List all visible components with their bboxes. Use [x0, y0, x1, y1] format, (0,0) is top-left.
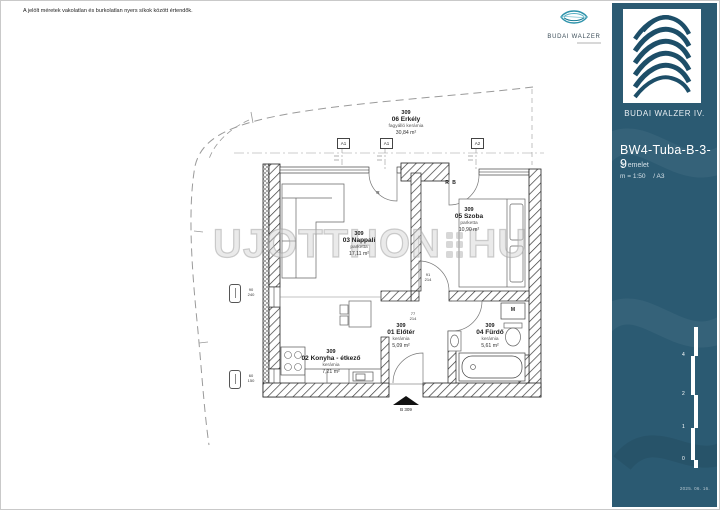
drawing-sheet: A jelölt méretek vakolatlan és burkolatl…: [0, 0, 720, 510]
axis-marker-a1-right: A1: [380, 138, 393, 149]
door-label-r: R: [376, 190, 379, 196]
room-label-szoba: 309 05 Szoba parketta 10,90 m²: [455, 207, 483, 233]
floor-label: 3. emelet: [620, 162, 649, 169]
budai-walzer-logo: BUDAI WALZER: [539, 6, 609, 44]
scalebar-label-0: 0: [682, 456, 685, 462]
washer-label-m: M: [511, 307, 515, 313]
disclaimer-text: A jelölt méretek vakolatlan és burkolatl…: [23, 8, 193, 14]
window-dim-upper: 90 240: [248, 287, 255, 297]
watermark-dots-icon: [446, 232, 463, 258]
room-label-erkely: 309 06 Erkély fagyálló kerámia 30,84 m²: [389, 110, 424, 136]
scale-value: m = 1:50: [620, 173, 645, 180]
watermark-left: UJOTTHON: [213, 222, 441, 267]
top-logo-label: BUDAI WALZER: [539, 34, 609, 40]
door-dim-eloter: 77 214: [410, 311, 417, 321]
sidebar-logo-box: [623, 9, 701, 103]
leaf-swirl-icon: [558, 6, 590, 28]
sheet-size: / A3: [653, 173, 664, 180]
door-dim-szoba: 91 214: [425, 272, 432, 282]
date-stamp: 2025. 06. 16.: [680, 486, 710, 491]
window-marker-box-upper: [229, 284, 241, 303]
window-dim-lower: 60 150: [248, 373, 255, 383]
scalebar-label-1: 1: [682, 424, 685, 430]
window-marker-box-lower: [229, 370, 241, 389]
title-block-sidebar: BUDAI WALZER IV. BW4-Tuba-B-3-9 3. emele…: [612, 3, 717, 507]
room-label-konyha: 309 02 Konyha - étkező kerámia 7,21 m²: [302, 349, 361, 375]
graphic-scale-bar: 4 2 1 0: [680, 325, 704, 471]
entrance-label: B 309: [400, 407, 412, 413]
room-label-eloter: 309 01 Előtér kerámia 5,09 m²: [387, 323, 414, 349]
scale-label: m = 1:50 / A3: [620, 173, 665, 180]
axis-marker-a1-left: A1: [337, 138, 350, 149]
sidebar-brand: BUDAI WALZER IV.: [612, 109, 717, 118]
door-label-rb: R B: [445, 180, 457, 186]
axis-marker-a2: A2: [471, 138, 484, 149]
room-label-furdo: 309 04 Fürdő kerámia 5,61 m²: [476, 323, 503, 349]
top-logo-subline: [577, 42, 601, 44]
room-label-nappali: 309 03 Nappali parketta 17,11 m²: [343, 231, 376, 257]
wave-mountain-icon: [623, 9, 701, 103]
entrance-marker: [393, 396, 419, 405]
scalebar-label-2: 2: [682, 391, 685, 397]
scalebar-label-4: 4: [682, 352, 685, 358]
